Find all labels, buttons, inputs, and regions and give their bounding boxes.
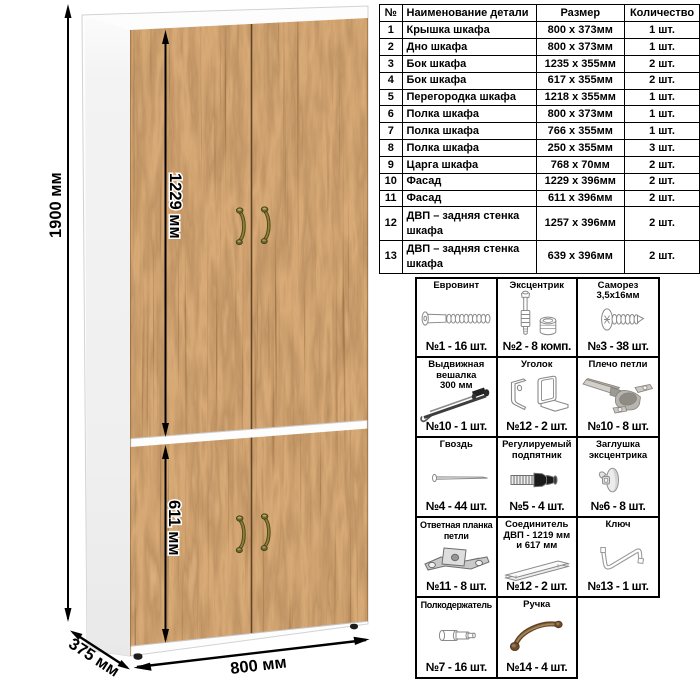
svg-text:611 мм: 611 мм	[165, 500, 183, 556]
svg-text:800 мм: 800 мм	[229, 653, 287, 678]
svg-text:1900 мм: 1900 мм	[47, 172, 65, 238]
svg-text:1229 мм: 1229 мм	[166, 173, 184, 239]
